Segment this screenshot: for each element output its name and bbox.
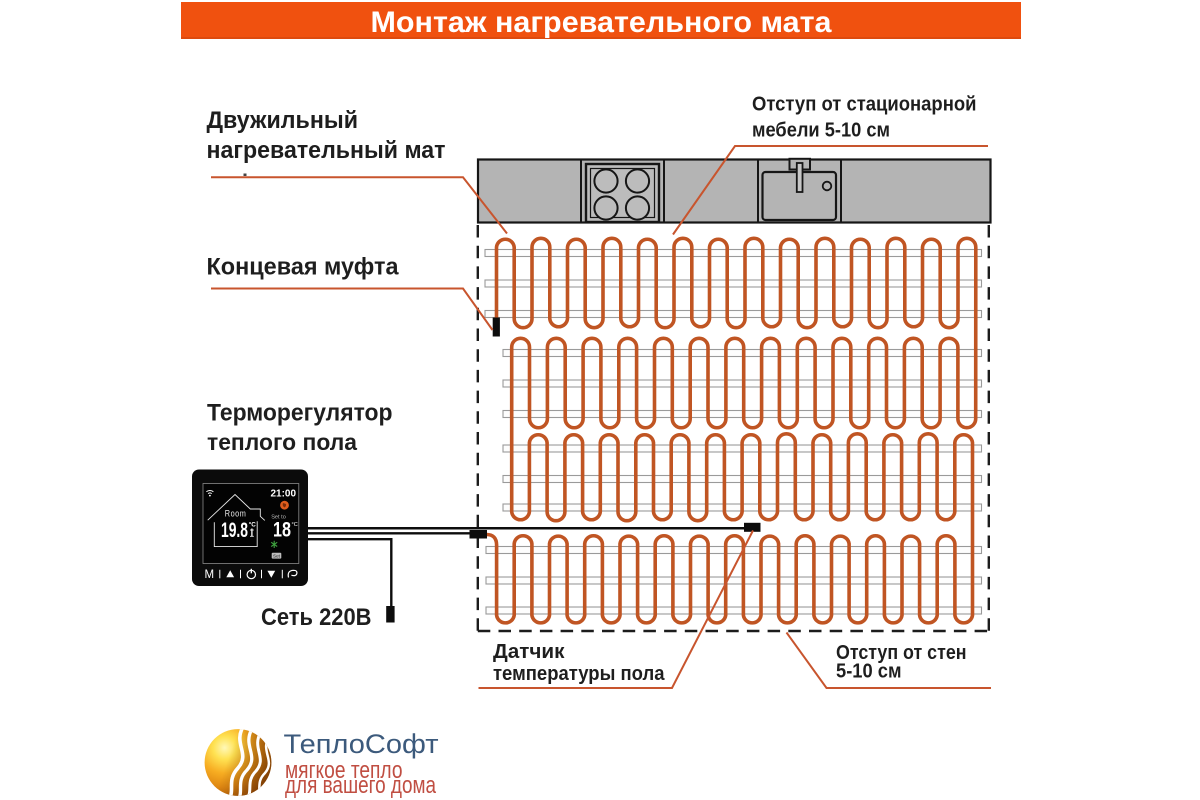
svg-text:Set: Set <box>273 554 281 559</box>
svg-text:Монтаж нагревательного мата: Монтаж нагревательного мата <box>371 6 832 39</box>
svg-text:°C: °C <box>249 521 257 529</box>
svg-text:21:00: 21:00 <box>271 488 297 499</box>
svg-text:19.8: 19.8 <box>221 519 248 542</box>
svg-text:M: M <box>205 569 215 581</box>
svg-text:температуры пола: температуры пола <box>493 662 665 685</box>
svg-text:Концевая муфта: Концевая муфта <box>207 254 399 281</box>
svg-text:5-10 см: 5-10 см <box>836 660 902 683</box>
svg-text:для вашего дома: для вашего дома <box>285 772 437 799</box>
svg-text:Терморегулятор: Терморегулятор <box>207 400 393 427</box>
svg-text:Двужильный: Двужильный <box>207 107 359 134</box>
svg-text:18: 18 <box>273 519 291 542</box>
svg-text:Room: Room <box>225 509 247 519</box>
svg-text:мебели 5-10 см: мебели 5-10 см <box>752 118 890 141</box>
svg-text:ТеплоСофт: ТеплоСофт <box>284 729 439 759</box>
svg-text:Сеть 220В: Сеть 220В <box>261 604 372 631</box>
svg-text:нагревательный мат: нагревательный мат <box>207 137 446 164</box>
svg-text:Отступ от стационарной: Отступ от стационарной <box>752 93 977 116</box>
svg-text:°C: °C <box>292 522 298 528</box>
svg-text:Датчик: Датчик <box>493 640 565 663</box>
svg-text:теплого пола: теплого пола <box>207 429 357 455</box>
